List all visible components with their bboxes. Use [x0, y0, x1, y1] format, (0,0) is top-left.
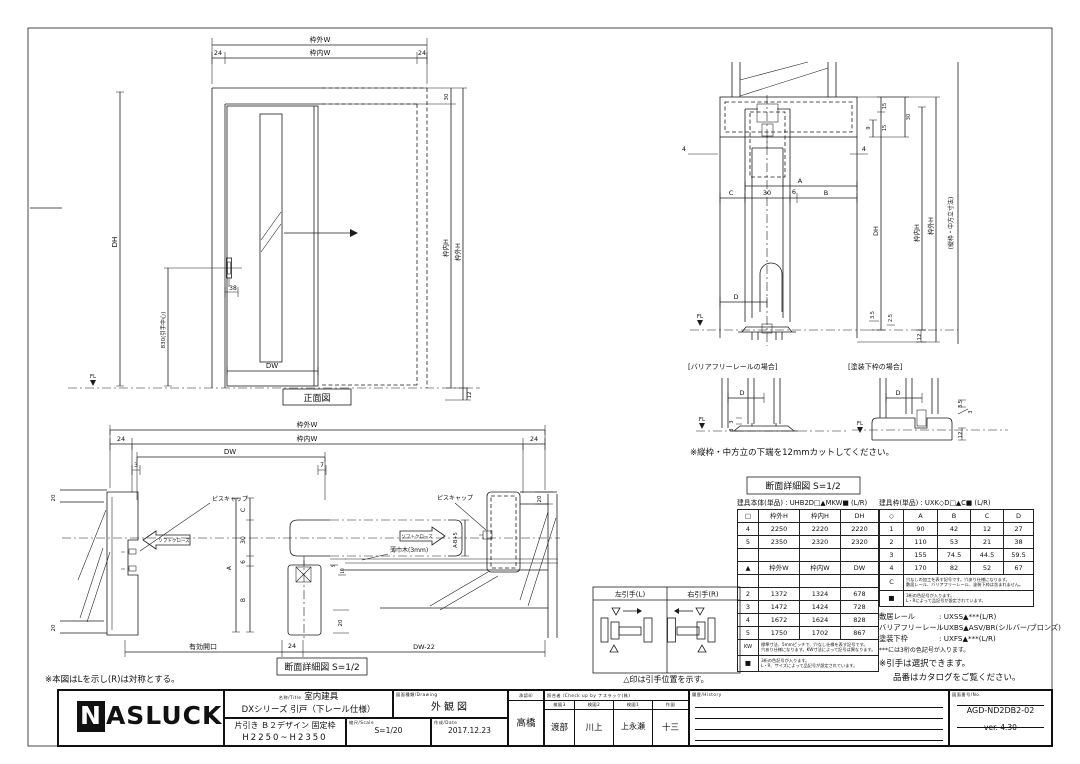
table-row: 2110532138 — [880, 536, 1034, 549]
dim-a: A — [798, 177, 803, 185]
drawing-number-label: 図面番号/No. — [950, 691, 1051, 698]
dim-20-tr: 20 — [537, 495, 543, 502]
detail-barrier-free: [バリアフリーレールの場合] D FL 3 3 — [688, 362, 846, 432]
height-range: H2250~H2350 — [225, 732, 345, 744]
dim-a-b-5: A-B+5 — [453, 532, 459, 548]
handle-diagram-right — [668, 608, 716, 652]
dim-3: 3 — [968, 410, 974, 413]
table-row: 416721624828 — [738, 614, 879, 627]
approver-name: 高橋 — [509, 701, 543, 729]
dim-10: 10 — [340, 568, 346, 574]
catalog-note: 品番はカタログをご覧ください。 — [893, 671, 1079, 683]
table-row: ◇ABCD — [880, 510, 1034, 523]
table-row: 314721424728 — [738, 601, 879, 614]
section-caption: 断面詳細図 S=1/2 — [765, 480, 841, 492]
dim-24-bottom: 24 — [288, 642, 296, 650]
dim-wakugai-h: 枠外H — [926, 217, 935, 235]
dim-dw: DW — [266, 362, 278, 370]
handle-select-note: ※引手は選択できます。 — [879, 657, 1079, 669]
dim-3-5: 3.5 — [958, 400, 964, 408]
checkers-label: 照合者 /Check up by ナスラック(株) — [545, 691, 688, 701]
screw-cap-label-right: ピスキャップ — [437, 495, 473, 502]
title-name-upper-cell: 名称/Title 室内建具 DXシリーズ 引戸（下レール仕様） — [224, 690, 393, 718]
fl-marker: FL — [699, 417, 706, 423]
rail-line: バリアフリーレール: UXBS▲ASV/BR(シルバー/ブロンズ) — [879, 622, 1079, 633]
fl-marker: FL — [90, 374, 97, 380]
frame-table: ◇ABCD 190421227 2110532138 315574.544.55… — [879, 509, 1034, 607]
dim-4-right: 4 — [862, 145, 866, 153]
body-spec-table: 建具本体(単品) : UHB2D□▲MKW■ (L/R) □枠外H枠内HDH 4… — [737, 497, 878, 672]
dim-24-right: 24 — [418, 49, 426, 57]
screw-cap-label-left: ピスキャップ — [212, 496, 248, 503]
date-value: 2017.12.23 — [432, 726, 507, 735]
dim-6: 6 — [240, 560, 247, 564]
skirting-label: 薄巾木(3mm) — [390, 546, 428, 554]
dim-wakugai-w: 枠外W — [310, 35, 331, 44]
dim-wakunai-h: 枠内H — [912, 224, 921, 242]
table-row: 213721324678 — [738, 588, 879, 601]
dim-38: 38 — [229, 285, 237, 292]
detail-painted-sill: [塗装下枠の場合] D FL 3.5 3 12 — [848, 362, 1008, 440]
outer-dim-note: (縦枠・中方立寸法) — [947, 197, 955, 250]
dim-24-left: 24 — [214, 49, 222, 57]
drawing-version: ver. 4.30 — [950, 715, 1051, 732]
dim-dh: DH — [111, 237, 119, 248]
dim-12: 12 — [917, 334, 923, 341]
table-row: ■3桁の色記号が入ります。L・R、サイズによって品記号が設定されています。 — [738, 656, 879, 672]
dim-b: B — [240, 598, 247, 602]
table-row: 315574.544.559.5 — [880, 549, 1034, 562]
detail1-caption: [バリアフリーレールの場合] — [688, 362, 778, 371]
detail2-caption: [塗装下枠の場合] — [848, 362, 903, 371]
front-caption: 正面図 — [303, 393, 330, 404]
plan-view: 枠外W 24 枠内W 24 DW 3 7 20 20 20 20 C 30 6 … — [45, 420, 560, 685]
table-row: ■3桁の色記号が入ります。L・Rによって品記号が設定されています。 — [880, 591, 1034, 607]
dim-6: 6 — [792, 188, 796, 196]
dim-12: 12 — [467, 392, 473, 399]
color-code-note: ***には3桁の色記号が入ります。 — [879, 645, 1079, 654]
dim-15a: 15 — [882, 103, 888, 109]
dim-20-tl: 20 — [51, 494, 57, 501]
dim-3a: 3 — [729, 420, 735, 423]
dim-wakugai-h: 枠外H — [453, 243, 462, 261]
frame-spec-table: 建具枠(単品) : UXK◇D□▲C■ (L/R) ◇ABCD 19042122… — [879, 497, 1033, 607]
table-row — [738, 575, 879, 588]
rail-line: 敷居レール: UXSS▲***(L/R) — [879, 611, 1079, 622]
dim-5: 5 — [331, 564, 337, 567]
history-rule — [695, 740, 943, 741]
scale-value: S=1/20 — [347, 726, 430, 735]
drawing-type-value: 外観図 — [394, 698, 507, 713]
dim-wakugai-w: 枠外W — [297, 420, 318, 429]
title-name-lower-cell: 片引き Ｂ２デザイン 固定枠 H2250~H2350 — [224, 718, 346, 746]
handle-right-header: 右引手(R) — [687, 590, 719, 599]
date-label: 作成/Date — [432, 719, 507, 726]
dim-c: C — [240, 508, 247, 512]
dim-opening: 有効開口 — [189, 642, 217, 651]
handle-diagram-left — [601, 608, 652, 652]
dim-24-left: 24 — [117, 435, 125, 443]
dim-4-left: 4 — [682, 145, 686, 153]
approver-label: 承認印 — [509, 691, 543, 701]
rule — [957, 705, 1044, 706]
section-notes: ※縦枠・中方立の下端を12mmカットしてください。 断面詳細図 S=1/2 — [690, 447, 894, 494]
front-view: 枠外W 24 枠内W 24 DH 830(引手中心) 38 DW FL 30 枠… — [30, 35, 480, 405]
product-category: 室内建具 — [304, 692, 338, 702]
table-row: ▲枠外W枠内WDW — [738, 562, 879, 575]
fl-marker: FL — [857, 421, 864, 427]
dim-15b: 15 — [882, 125, 888, 131]
checker-col: 検図3 渡部 — [545, 701, 575, 745]
drawing-type-label: 図面種類/Drawing — [394, 691, 507, 698]
soft-close-label-right: ソフトクローズ — [401, 533, 433, 540]
dim-2-5: 2.5 — [888, 314, 894, 322]
dim-9: 9 — [866, 126, 872, 129]
body-table-title: 建具本体(単品) : UHB2D□▲MKW■ (L/R) — [737, 497, 878, 507]
soft-close-label-left: ソフトクローズ — [158, 537, 190, 544]
checkers-cell: 照合者 /Check up by ナスラック(株) 検図3 渡部 検図2 川上 … — [544, 690, 689, 746]
dim-12: 12 — [958, 432, 964, 439]
dim-20-bl: 20 — [51, 624, 57, 631]
dim-d: D — [739, 389, 744, 397]
dim-3b: 3 — [729, 428, 735, 431]
checker-col: 作図 十三 — [653, 701, 688, 745]
dim-24-right: 24 — [530, 435, 538, 443]
drawing-number: AGD-ND2DB2-02 — [950, 698, 1051, 715]
table-row: 5235023202320 — [738, 536, 879, 549]
history-rule — [695, 707, 943, 708]
table-row — [738, 549, 879, 562]
title-block: NASLUCK 名称/Title 室内建具 DXシリーズ 引戸（下レール仕様） … — [57, 689, 1053, 747]
handle-note: △印は引手位置を示す。 — [623, 674, 708, 684]
approver-cell: 承認印 高橋 — [508, 690, 544, 746]
company-logo: NASLUCK — [59, 691, 223, 730]
dim-d: D — [895, 389, 900, 397]
series-name: DXシリーズ 引戸（下レール仕様） — [225, 704, 392, 716]
dim-dw-22: DW-22 — [413, 643, 435, 651]
section-view: 4 4 A C 30 6 B D FL 15 9 15 30 DH 枠内H 枠外… — [682, 62, 958, 346]
dim-3-5: 3.5 — [870, 311, 876, 319]
drawing-type-cell: 図面種類/Drawing 外観図 — [393, 690, 508, 718]
history-label: 履歴/History — [690, 691, 948, 698]
table-row: 190421227 — [880, 523, 1034, 536]
dim-wakunai-w: 枠内W — [297, 434, 318, 443]
table-row: □枠外H枠内HDH — [738, 510, 879, 523]
name-label: 名称/Title — [279, 695, 302, 700]
dim-b: B — [824, 189, 828, 197]
handle-left-header: 左引手(L) — [615, 590, 646, 599]
checker-col: 検図1 上永瀬 — [614, 701, 653, 745]
frame-table-title: 建具枠(単品) : UXK◇D□▲C■ (L/R) — [879, 497, 1033, 507]
plan-note: ※本図はLを示し(R)は対称とする。 — [45, 674, 180, 685]
rail-info: 敷居レール: UXSS▲***(L/R) バリアフリーレール: UXBS▲ASV… — [879, 611, 1079, 683]
cut-note: ※縦枠・中方立の下端を12mmカットしてください。 — [690, 447, 894, 458]
plan-caption: 断面詳細図 S=1/2 — [284, 661, 360, 673]
rail-line: 塗装下枠: UXFS▲***(L/R) — [879, 633, 1079, 644]
dim-20-inner: 20 — [338, 619, 344, 626]
dim-dh: DH — [872, 226, 880, 236]
table-row: 4225022202220 — [738, 523, 879, 536]
dim-dw: DW — [224, 448, 236, 456]
fl-marker: FL — [697, 314, 704, 320]
dim-30r: 30 — [906, 114, 912, 120]
date-cell: 作成/Date 2017.12.23 — [431, 718, 508, 746]
drawing-number-cell: 図面番号/No. AGD-ND2DB2-02 ver. 4.30 — [949, 690, 1052, 746]
dim-c: C — [729, 189, 734, 197]
dim-3: 3 — [134, 462, 138, 469]
drawing-sheet: 枠外W 24 枠内W 24 DH 830(引手中心) 38 DW FL 30 枠… — [0, 0, 1080, 764]
table-row: 4170825267 — [880, 562, 1034, 575]
dim-wakunai-h: 枠内H — [441, 239, 450, 257]
model-type: 片引き Ｂ２デザイン 固定枠 — [225, 719, 345, 732]
dim-30: 30 — [444, 93, 450, 100]
dim-handle-center: 830(引手中心) — [159, 312, 167, 349]
handle-position-selector: 左引手(L) 右引手(R) △印は引手位置を示す。 — [593, 587, 740, 684]
dim-wakunai-w: 枠内W — [310, 48, 331, 57]
history-rule — [695, 729, 943, 730]
body-table: □枠外H枠内HDH 4225022202220 5235023202320 ▲枠… — [737, 509, 879, 672]
dim-7: 7 — [320, 462, 324, 469]
history-rule — [695, 718, 943, 719]
table-row: C穴なしの加工を表す記号です。穴あり仕様になります。敷居レール、バリアフリーレー… — [880, 575, 1034, 591]
dim-d: D — [733, 293, 738, 301]
table-row: 517501702867 — [738, 627, 879, 640]
table-row: KW標準寸法、5mmピッチで、穴なし仕様を表す記号です。穴あり仕様になります。K… — [738, 640, 879, 656]
logo-cell: NASLUCK — [58, 690, 224, 746]
rule — [957, 727, 1044, 728]
checker-col: 検図2 川上 — [575, 701, 614, 745]
history-cell: 履歴/History — [689, 690, 949, 746]
dim-30: 30 — [763, 189, 771, 197]
scale-label: 縮尺/Scale — [347, 719, 430, 726]
scale-cell: 縮尺/Scale S=1/20 — [346, 718, 431, 746]
dim-a: A — [226, 565, 233, 570]
dim-30: 30 — [240, 536, 247, 544]
